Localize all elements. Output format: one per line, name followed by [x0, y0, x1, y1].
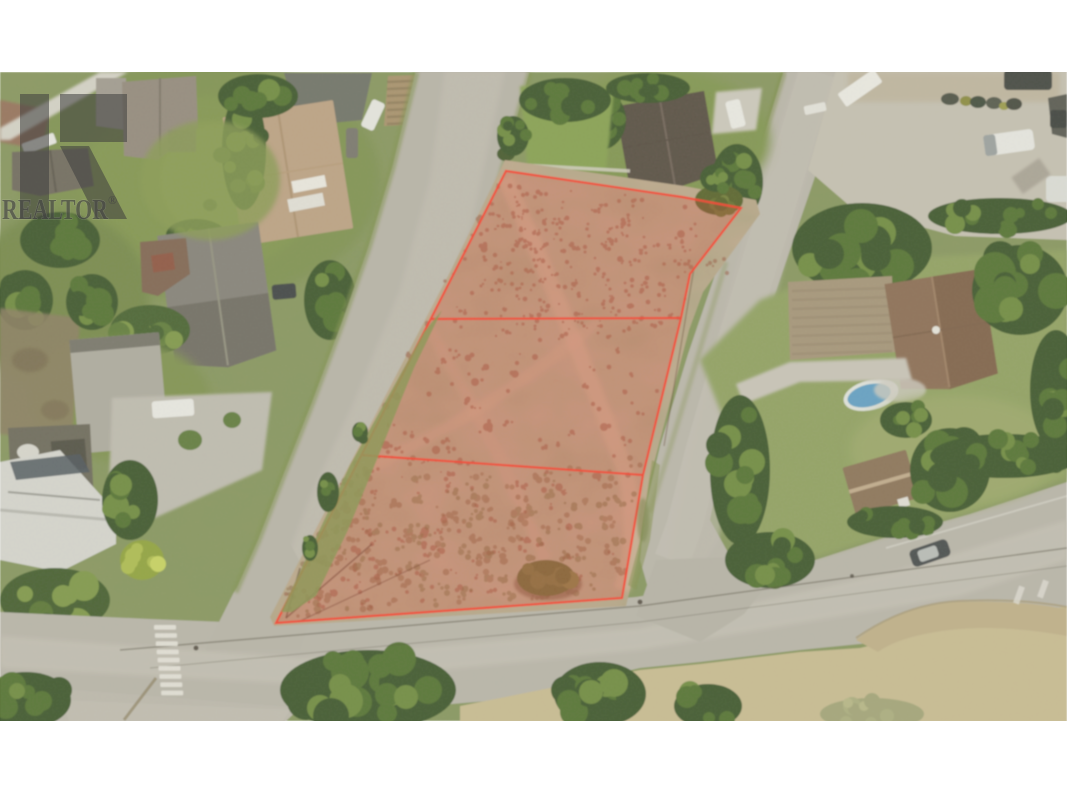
svg-text:®: ®: [108, 193, 117, 207]
svg-text:REALTOR: REALTOR: [2, 194, 109, 226]
